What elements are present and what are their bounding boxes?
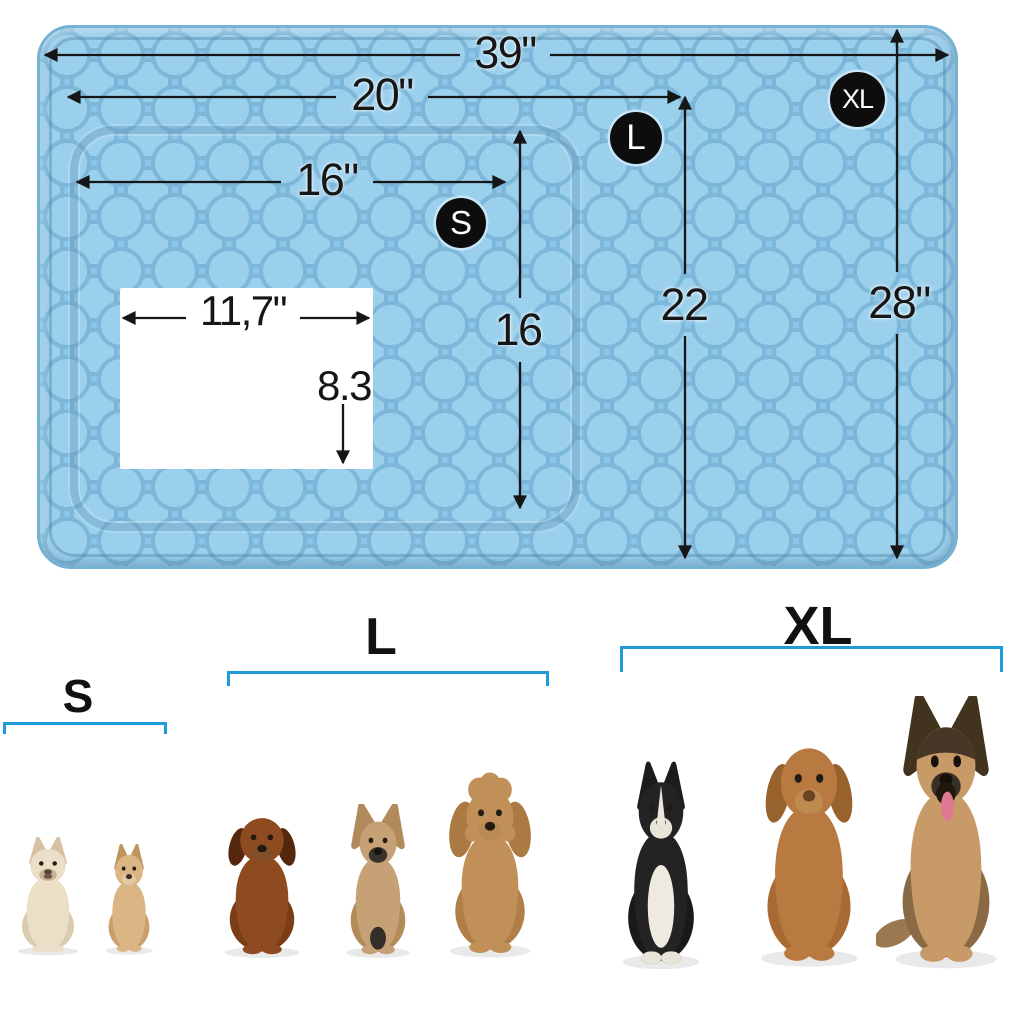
group-bracket-xl (620, 646, 1003, 649)
dim-label-l-height: 22 (660, 279, 707, 331)
size-chart-image: 39" 20" 16" 16 22 28" 11,7" 8.3 S L XL S… (0, 0, 1024, 1024)
badge-xl: XL (830, 72, 885, 127)
dim-label-window-width: 11,7" (200, 287, 286, 335)
dim-label-xl-height: 28" (868, 277, 930, 329)
dog-poodle (434, 768, 546, 960)
dog-chihuahua-tan (96, 842, 162, 956)
dim-label-s-height: 16 (494, 304, 541, 356)
dog-german-shepherd (876, 696, 1016, 972)
group-label-l: L (365, 607, 397, 667)
badge-s: S (436, 198, 486, 248)
group-bracket-l (227, 671, 549, 674)
dog-french-bulldog (334, 804, 422, 960)
group-bracket-s (3, 722, 167, 725)
group-label-s: S (63, 669, 94, 723)
dog-dachshund (210, 800, 314, 960)
badge-l: L (610, 112, 662, 164)
dog-border-collie (608, 758, 714, 972)
dog-chihuahua-cream (6, 835, 90, 957)
dim-label-window-height: 8.3 (317, 362, 371, 410)
dim-label-l-width: 20" (351, 69, 413, 121)
dog-labrador-retriever (742, 720, 876, 970)
dim-label-xl-width: 39" (474, 27, 536, 79)
dim-label-s-width: 16" (296, 154, 358, 206)
